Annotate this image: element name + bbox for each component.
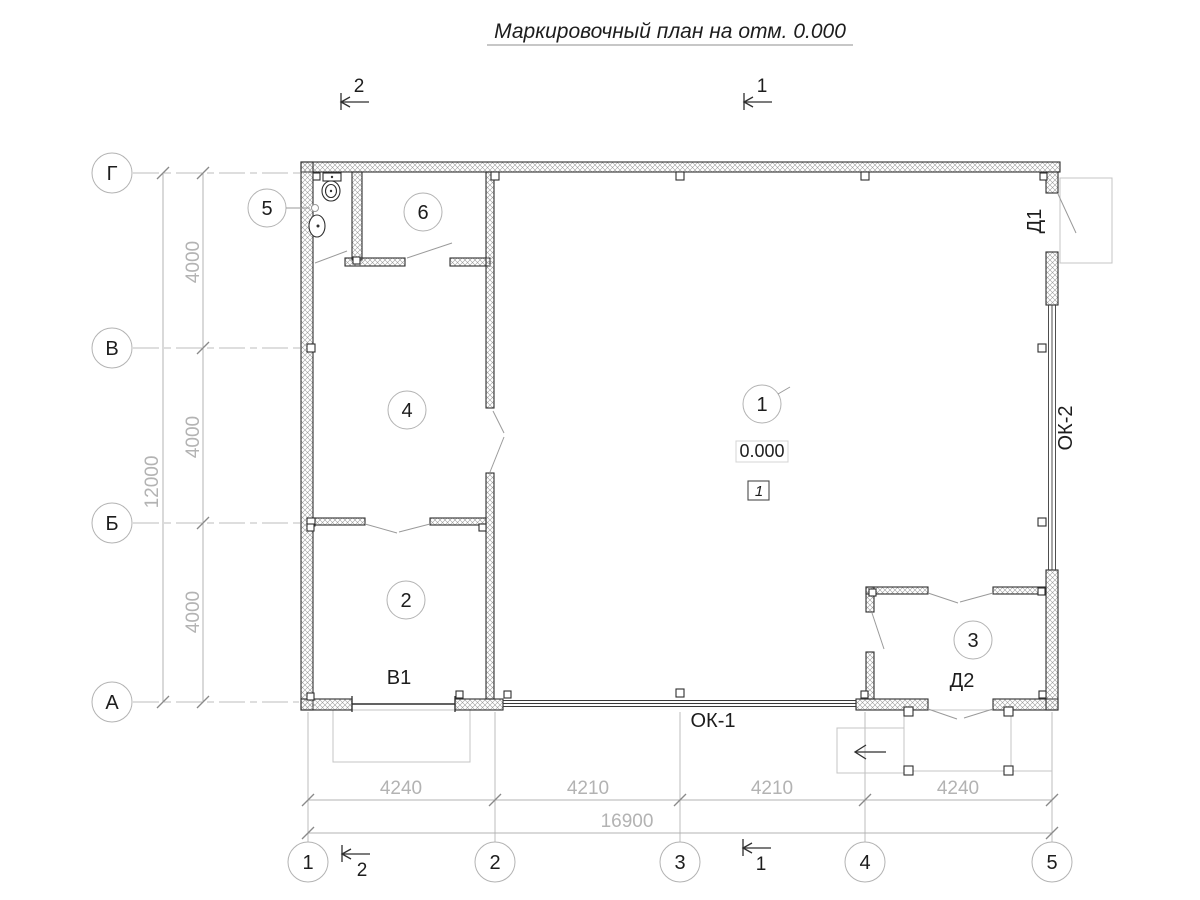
section-number: 2 xyxy=(354,76,365,97)
door-swing-room2-b xyxy=(399,524,430,532)
door-swing-room3-left xyxy=(872,613,884,649)
room-number-5: 5 xyxy=(261,198,272,220)
wall-bottom-seg3 xyxy=(856,699,928,710)
room5-leader-dot xyxy=(312,205,319,212)
junction-square xyxy=(676,689,684,697)
partition-wc-south-right xyxy=(450,258,490,266)
toilet-tank-dot xyxy=(331,176,333,178)
porch-column-square xyxy=(1004,766,1013,775)
floor-type-value: 1 xyxy=(755,483,763,500)
dim-label-4240-a: 4240 xyxy=(380,778,422,799)
junction-square xyxy=(479,524,486,531)
axis-label-A: А xyxy=(105,692,119,714)
porch-column-square xyxy=(904,707,913,716)
junction-square xyxy=(1038,588,1045,595)
elevation-mark: 0.000 1 xyxy=(736,441,788,500)
junction-square xyxy=(307,344,315,352)
ramp xyxy=(837,728,904,773)
room-number-1: 1 xyxy=(756,394,767,416)
section-mark-1-bottom: 1 xyxy=(743,839,771,875)
door1-mark: Д1 xyxy=(1024,209,1046,234)
axis-label-1: 1 xyxy=(302,852,313,874)
partition-room2-room4-right xyxy=(430,518,486,525)
dim-label-4000-a: 4000 xyxy=(183,241,204,283)
junction-square xyxy=(491,172,499,180)
door1-porch xyxy=(1060,178,1112,263)
door-swing-room5 xyxy=(315,251,347,263)
door2-mark: Д2 xyxy=(950,670,975,692)
section-number: 2 xyxy=(357,860,368,881)
axis-label-V: В xyxy=(105,338,118,360)
wall-top xyxy=(301,162,1060,172)
room-number-3: 3 xyxy=(967,630,978,652)
partition-room5-room6 xyxy=(352,172,362,260)
dim-label-4000-b: 4000 xyxy=(183,416,204,458)
floor-plan-drawing: Маркировочный план на отм. 0.000 4000 40… xyxy=(0,0,1200,900)
door-swing-room6 xyxy=(407,243,452,258)
door-swing-hall-b xyxy=(490,437,504,472)
exterior-aprons xyxy=(333,178,1112,773)
gate-apron xyxy=(333,710,470,762)
section-mark-1-top: 1 xyxy=(744,76,772,110)
door-swing-hall-a xyxy=(493,411,504,433)
page-title: Маркировочный план на отм. 0.000 xyxy=(494,20,846,43)
window1-mark: ОК-1 xyxy=(691,710,736,732)
porch-column-square xyxy=(1004,707,1013,716)
wall-bottom-seg1 xyxy=(301,699,352,710)
junction-square xyxy=(456,691,463,698)
junction-square xyxy=(1038,344,1046,352)
junction-square xyxy=(313,173,320,180)
junction-square xyxy=(1040,173,1047,180)
junction-square xyxy=(1038,518,1046,526)
axis-label-G: Г xyxy=(107,163,118,185)
axis-label-2: 2 xyxy=(489,852,500,874)
axis-label-5: 5 xyxy=(1046,852,1057,874)
partition-room2-room4-left xyxy=(313,518,365,525)
plan-canvas: Маркировочный план на отм. 0.000 4000 40… xyxy=(0,0,1200,900)
dim-label-4000-c: 4000 xyxy=(183,591,204,633)
door-swing-room3-top-b xyxy=(960,593,993,602)
wall-right-seg3 xyxy=(1046,570,1058,710)
section-number: 1 xyxy=(756,854,767,875)
porch-column-square xyxy=(904,766,913,775)
wall-bottom-seg2 xyxy=(455,699,503,710)
sink-drain-dot xyxy=(317,225,320,228)
junction-square xyxy=(861,691,868,698)
toilet-dot xyxy=(330,190,332,192)
grid-balloons: Г В Б А 1 2 3 4 5 xyxy=(92,153,1072,882)
dim-label-16900: 16900 xyxy=(601,811,654,832)
partition-hall-upper xyxy=(486,172,494,408)
section-number: 1 xyxy=(757,76,768,97)
junction-markers xyxy=(307,172,1047,775)
room-number-4: 4 xyxy=(401,400,412,422)
room-number-6: 6 xyxy=(417,202,428,224)
junction-square xyxy=(861,172,869,180)
room1-leader-line xyxy=(778,387,790,394)
grid-lines xyxy=(133,173,1052,842)
door-swing-d1 xyxy=(1058,194,1076,233)
dim-label-4210-a: 4210 xyxy=(567,778,609,799)
junction-square xyxy=(869,589,876,596)
wall-right-pier-top xyxy=(1046,172,1058,193)
window2-mark: ОК-2 xyxy=(1055,406,1077,451)
axis-label-3: 3 xyxy=(674,852,685,874)
dim-label-4240-b: 4240 xyxy=(937,778,979,799)
wall-left xyxy=(301,162,313,710)
dim-label-4210-b: 4210 xyxy=(751,778,793,799)
dim-label-12000: 12000 xyxy=(142,456,163,509)
junction-square xyxy=(676,172,684,180)
junction-square xyxy=(307,693,314,700)
junction-square xyxy=(504,691,511,698)
door-swing-room2-a xyxy=(365,524,397,533)
section-mark-2-top: 2 xyxy=(341,76,369,110)
wall-right-seg2 xyxy=(1046,252,1058,305)
door2-porch xyxy=(904,710,1011,771)
room-number-2: 2 xyxy=(400,590,411,612)
section-mark-2-bottom: 2 xyxy=(342,845,370,881)
junction-square xyxy=(1039,691,1046,698)
elevation-value: 0.000 xyxy=(739,441,784,461)
junction-square xyxy=(353,257,360,264)
dimension-left: 4000 4000 4000 12000 xyxy=(142,167,209,708)
partition-hall-lower xyxy=(486,473,494,699)
axis-label-B: Б xyxy=(105,513,118,535)
gate-mark: В1 xyxy=(387,667,411,689)
door-swing-room3-top-a xyxy=(928,593,958,603)
drawing-title: Маркировочный план на отм. 0.000 xyxy=(487,20,853,45)
section-marks: 2 1 2 1 xyxy=(341,76,772,881)
axis-label-4: 4 xyxy=(859,852,870,874)
junction-square xyxy=(307,524,314,531)
walls xyxy=(301,162,1060,710)
